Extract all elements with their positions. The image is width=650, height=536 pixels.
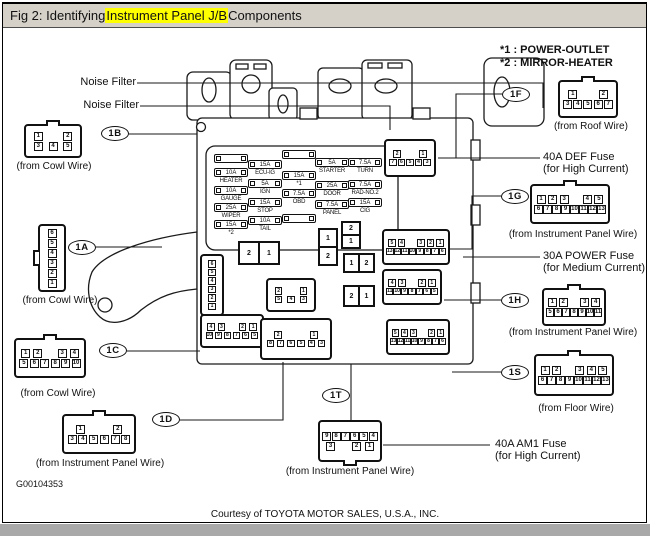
pin-1: 1 [34,132,43,141]
pin-gap [339,442,348,451]
pin-row: 345 [28,142,78,151]
pin-5: 5 [431,288,438,296]
fuse-name: OBD [293,199,305,206]
pin-5: 5 [297,340,305,348]
pin-gap [228,323,236,331]
pin-gap [406,150,414,158]
fuse-terminal [241,205,246,210]
relay-cell-2: 2 [239,242,259,264]
pin-3: 3 [423,159,431,167]
figure-title-suffix: Components [228,8,302,23]
pin-6: 6 [594,100,603,109]
fuse-terminal [350,160,355,165]
fuse-terminal [241,188,246,193]
fuse-terminal [216,156,221,161]
fuse-terminal [250,218,255,223]
fuse-amp-rating: 5A [261,181,268,187]
fuse-terminal [275,200,280,205]
relay-cell-1: 1 [319,229,337,247]
fuse-amp-rating: 25A [226,205,237,211]
pin-4: 4 [208,277,216,285]
pin-2: 2 [63,132,72,141]
pin-7: 7 [604,100,613,109]
fuse-terminal [317,183,322,188]
jb-connector-a: 654321 [200,254,224,316]
relay-cell-1: 1 [259,242,279,264]
figure-title-prefix: Fig 2: Identifying [10,8,105,23]
fuse-body: 7.5A [282,189,316,198]
fuse-terminal [375,182,380,187]
pin-9: 9 [565,376,574,385]
pin-11: 11 [579,205,588,214]
fuse-rad-no2: 7.5ARAD-NO.2 [347,180,383,197]
pin-4: 4 [398,239,406,247]
fuse-terminal [309,152,314,157]
fuse-starter: 5ASTARTER [314,158,350,175]
pin-10: 10 [411,338,418,346]
pin-6: 6 [287,340,295,348]
pin-11: 11 [386,288,393,296]
pin-9: 9 [215,332,223,340]
fuse-amp-rating: 5A [328,160,335,166]
fuse-body: 7.5A [348,180,382,189]
fuse-body: 15A [248,160,282,169]
pin-10: 10 [409,248,417,256]
pin-5: 5 [48,239,57,248]
legend: *1 : POWER-OUTLET *2 : MIRROR-HEATER [500,44,613,70]
pin-gap [95,425,104,434]
pin-row: 76543 [388,159,432,167]
fuse-blank [281,150,317,159]
pin-1: 1 [541,366,550,375]
figure-title-bar: Fig 2: Identifying Instrument Panel J/B … [3,4,646,28]
pin-3: 3 [58,349,67,358]
pin-10: 10 [72,359,81,368]
fuse-terminal [284,191,289,196]
pin-3: 3 [398,279,406,287]
fuse-terminal [216,222,221,227]
fuse-terminal [317,202,322,207]
pin-row: 21 [270,287,312,295]
connector-tab [581,76,595,82]
pin-3: 3 [48,259,57,268]
pin-5: 5 [208,269,216,277]
pin-8: 8 [556,376,565,385]
pin-3: 3 [300,296,308,304]
fuse-amp-rating: 25A [327,183,338,189]
pin-7: 7 [547,376,556,385]
connector-tab [92,410,106,416]
pin-1: 1 [419,150,427,158]
fuse-heater: 10AHEATER [213,168,249,185]
pin-row: 5 [42,239,62,248]
fuse-name: *2 [228,230,233,237]
pin-6: 6 [534,205,543,214]
pin-3: 3 [563,100,572,109]
pin-row: 4321 [204,323,260,331]
pin-4: 4 [388,279,396,287]
fuse-name: PANEL [323,210,341,217]
fuse-amp-rating: 15A [360,200,371,206]
pin-3: 3 [417,239,425,247]
pin-2: 2 [393,150,401,158]
pin-7: 7 [341,432,350,441]
pin-row: 131211109876 [390,338,446,346]
connector-1h: 1234567891011 [542,288,606,326]
pin-gap [564,366,573,375]
pin-5: 5 [63,142,72,151]
fuse-body: 15A [248,198,282,207]
fuse-terminal [216,188,221,193]
relay-block: 12 [318,228,338,266]
pin-5: 5 [583,100,592,109]
connector-1t: 987654321 [318,420,382,462]
fuse-body: 15A [214,220,248,229]
pin-2: 2 [208,294,216,302]
pin-3: 3 [575,366,584,375]
pin-9: 9 [418,338,425,346]
pin-4: 4 [415,159,423,167]
pin-8: 8 [408,288,415,296]
pin-2: 2 [33,349,42,358]
relay-cell-2: 2 [319,247,337,265]
pin-6: 6 [398,159,406,167]
pin-5: 5 [406,159,414,167]
pin-row: 12 [562,90,614,99]
pin-2: 2 [427,239,435,247]
callout-1g: 1G [501,189,529,204]
callout-1h: 1H [501,293,529,308]
pin-12: 12 [394,248,402,256]
pin-1: 1 [249,323,257,331]
fuse-terminal [250,200,255,205]
pin-11: 11 [404,338,411,346]
fuse-name: WIPER [222,213,241,220]
caption-1h: (from Instrument Panel Wire) [508,327,638,338]
pin-row: 3 [42,259,62,268]
fuse-body: 25A [214,203,248,212]
pin-3: 3 [218,323,226,331]
pin-row: 4 [204,277,220,285]
fuse-body: 7.5A [348,158,382,167]
caption-1a: (from Cowl Wire) [8,295,112,306]
legend-mirror-heater: *2 : MIRROR-HEATER [500,57,613,70]
pin-6: 6 [350,432,359,441]
pin-4: 4 [78,435,87,444]
pin-row: 5 [204,269,220,277]
fuse-terminal [241,156,246,161]
pin-4: 4 [369,432,378,441]
pin-3: 3 [68,435,77,444]
pin-2: 2 [418,279,426,287]
fuse-amp-rating: 7.5A [359,182,371,188]
pin-gap [408,279,416,287]
pin-gap [287,287,295,295]
pin-6: 6 [100,435,109,444]
pin-gap [571,195,580,204]
fuse-amp-rating: 10A [260,218,271,224]
pin-gap [407,239,415,247]
fuse-amp-rating: 7.5A [293,191,305,197]
pin-1: 1 [428,279,436,287]
pin-4: 4 [49,142,58,151]
callout-1f: 1F [502,87,530,102]
fuse-body [214,154,248,163]
pin-4: 4 [587,366,596,375]
connector-tab [33,250,39,266]
relay-cell-1: 1 [342,235,360,248]
connector-1b: 12345 [24,124,82,158]
fuse-amp-rating: 10A [226,170,237,176]
fuse-amp-rating: 7.5A [359,160,371,166]
pin-2: 2 [428,329,436,337]
pin-2: 2 [48,269,57,278]
pin-4: 4 [308,340,316,348]
callout-1d: 1D [152,412,180,427]
relay-block: 21 [341,221,361,249]
pin-6: 6 [242,332,250,340]
pin-2: 2 [599,90,608,99]
pin-2: 2 [239,323,247,331]
am1-fuse-label: 40A AM1 Fuse (for High Current) [495,438,581,462]
fuse-body: 10A [214,168,248,177]
pin-1: 1 [365,442,374,451]
fuse-terminal [241,170,246,175]
pin-7: 7 [562,308,570,317]
fuse-terminal [284,152,289,157]
caption-1f: (from Roof Wire) [546,121,636,132]
pin-1: 1 [548,298,557,307]
power-fuse-label-line2: (for Medium Current) [543,262,645,274]
pin-8: 8 [121,435,130,444]
callout-1b: 1B [101,126,129,141]
connector-tab [563,180,577,186]
pin-5: 5 [359,432,368,441]
relay-cell-1: 1 [359,286,374,306]
pin-10: 10 [574,376,583,385]
fuse-turn: 7.5ATURN [347,158,383,175]
pin-6: 6 [554,308,562,317]
fuse-terminal [250,181,255,186]
pin-row: 1 [42,279,62,288]
relay-cell-2: 2 [342,222,360,235]
pin-1: 1 [76,425,85,434]
pin-3: 3 [326,442,335,451]
connector-tab [46,120,60,126]
pin-13: 13 [390,338,397,346]
pin-8: 8 [332,432,341,441]
pin-4: 4 [207,323,215,331]
fuse-name: ECU-IG [255,170,275,177]
pin-4: 4 [48,249,57,258]
pin-9: 9 [578,308,586,317]
fuse-terminal [375,160,380,165]
callout-1t: 1T [322,388,350,403]
pin-7: 7 [40,359,49,368]
pin-7: 7 [431,248,439,256]
am1-fuse-label-line1: 40A AM1 Fuse [495,438,581,450]
caption-1t: (from Instrument Panel Wire) [268,466,432,477]
fuse-name: TURN [357,168,373,175]
fuse-obd: 7.5AOBD [281,189,317,206]
fuse-name: IGN [260,189,270,196]
fuse-body: 10A [248,216,282,225]
pin-11: 11 [401,248,409,256]
jb-connector-d: 21876543 [260,318,332,360]
def-fuse-label: 40A DEF Fuse (for High Current) [543,151,629,175]
pin-7: 7 [389,159,397,167]
pin-row: 2 [204,294,220,302]
pin-6: 6 [538,376,547,385]
pin-9: 9 [61,359,70,368]
fuse-name: RAD-NO.2 [351,190,378,197]
jb-connector-roof: 2176543 [384,139,436,177]
pin-4: 4 [591,298,600,307]
fuse-name: CIG [360,208,370,215]
pin-9: 9 [416,248,424,256]
pin-1: 1 [436,239,444,247]
pin-row: 1098765 [204,332,260,340]
pin-7: 7 [277,340,285,348]
connector-tab [43,334,57,340]
fuse-ecu-ig: 15AECU-IG [247,160,283,177]
fuse-terminal [241,222,246,227]
fuse-terminal [216,205,221,210]
pin-3: 3 [580,298,589,307]
callout-1c: 1C [99,343,127,358]
noise-filter-label-2: Noise Filter [63,99,139,111]
pin-5: 5 [251,332,259,340]
pin-row: 12 [66,425,132,434]
pin-7: 7 [416,288,423,296]
jb-connector-c: 43211098765 [200,314,264,348]
pin-5: 5 [594,195,603,204]
pin-12: 12 [588,205,597,214]
pin-row: 12345 [534,195,606,204]
fuse-body: 5A [315,158,349,167]
pin-8: 8 [267,340,275,348]
pin-4: 4 [401,329,409,337]
fuse-amp-rating: 15A [260,162,271,168]
pin-2: 2 [275,287,283,295]
pin-row: 21 [388,150,432,158]
fuse-terminal [250,162,255,167]
pin-4: 4 [583,195,592,204]
pin-6: 6 [439,248,447,256]
pin-1: 1 [21,349,30,358]
pin-row: 1234 [546,298,602,307]
pin-row: 131211109876 [386,248,446,256]
fuse-tail: 10ATAIL [247,216,283,233]
fuse-terminal [309,216,314,221]
pin-10: 10 [206,332,214,340]
pin-row: 321 [322,442,378,451]
jb-connector-s: 54321131211109876 [386,319,450,355]
jb-connector-h: 4321111098765 [382,269,442,305]
fuse-name: STARTER [319,168,345,175]
fuse-body: 25A [315,181,349,190]
connector-1c: 12345678910 [14,338,86,378]
pin-row: 111098765 [386,288,438,296]
pin-5: 5 [19,359,28,368]
pin-gap [292,331,300,339]
pin-row: 1 [204,303,220,311]
caption-1c: (from Cowl Wire) [2,388,114,399]
pin-row: 6 [204,260,220,268]
pin-1: 1 [568,90,577,99]
pin-2: 2 [352,442,361,451]
pin-row: 4321 [386,279,438,287]
jb-connector-g: 54321131211109876 [382,229,450,265]
pin-5: 5 [89,435,98,444]
pin-5: 5 [546,308,554,317]
fuse-terminal [350,182,355,187]
courtesy-note: Courtesy of TOYOTA MOTOR SALES, U.S.A., … [180,509,470,520]
connector-1f: 1234567 [558,80,618,118]
fuse-terminal [275,218,280,223]
pin-13: 13 [601,376,610,385]
pin-13: 13 [597,205,606,214]
fuse-body: 15A [348,198,382,207]
pin-6: 6 [48,229,57,238]
def-fuse-label-line2: (for High Current) [543,163,629,175]
fuse-amp-rating: 15A [294,173,305,179]
fuse-power-outlet: 15A*1 [281,171,317,188]
pin-10: 10 [570,205,579,214]
fuse-mirror-heater: 15A*2 [213,220,249,237]
pin-row: 5678910 [18,359,82,368]
fuse-body: 10A [214,186,248,195]
pin-9: 9 [401,288,408,296]
caption-1b: (from Cowl Wire) [2,161,106,172]
pin-row: 567891011 [546,308,602,317]
pin-11: 11 [594,308,602,317]
fuse-terminal [284,216,289,221]
fuse-gauge: 10AGAUGE [213,186,249,203]
pin-8: 8 [51,359,60,368]
fuse-name: DOOR [323,191,340,198]
pin-row: 678910111213 [538,376,610,385]
pin-row: 54321 [390,329,446,337]
pin-row: 876543 [264,340,328,348]
pin-gap [419,329,427,337]
pin-4: 4 [573,100,582,109]
am1-fuse-label-line2: (for High Current) [495,450,581,462]
pin-6: 6 [208,260,216,268]
pin-9: 9 [561,205,570,214]
callout-1s: 1S [501,365,529,380]
pin-2: 2 [548,195,557,204]
pin-8: 8 [224,332,232,340]
fuse-amp-rating: 15A [260,200,271,206]
fuse-terminal [375,200,380,205]
pin-13: 13 [386,248,394,256]
pin-4: 4 [287,296,295,304]
pin-2: 2 [552,366,561,375]
pin-5: 5 [598,366,607,375]
pin-2: 2 [274,331,282,339]
relay-cell-2: 2 [359,254,374,272]
document-code: G00104353 [16,479,63,489]
pin-row: 543 [270,296,312,304]
noise-filter-label-1: Noise Filter [60,76,136,88]
fuse-name: GAUGE [221,196,242,203]
pin-9: 9 [322,432,331,441]
pin-8: 8 [552,205,561,214]
fuse-blank [281,214,317,223]
fuse-body: 5A [248,179,282,188]
fuse-body: 7.5A [315,200,349,209]
